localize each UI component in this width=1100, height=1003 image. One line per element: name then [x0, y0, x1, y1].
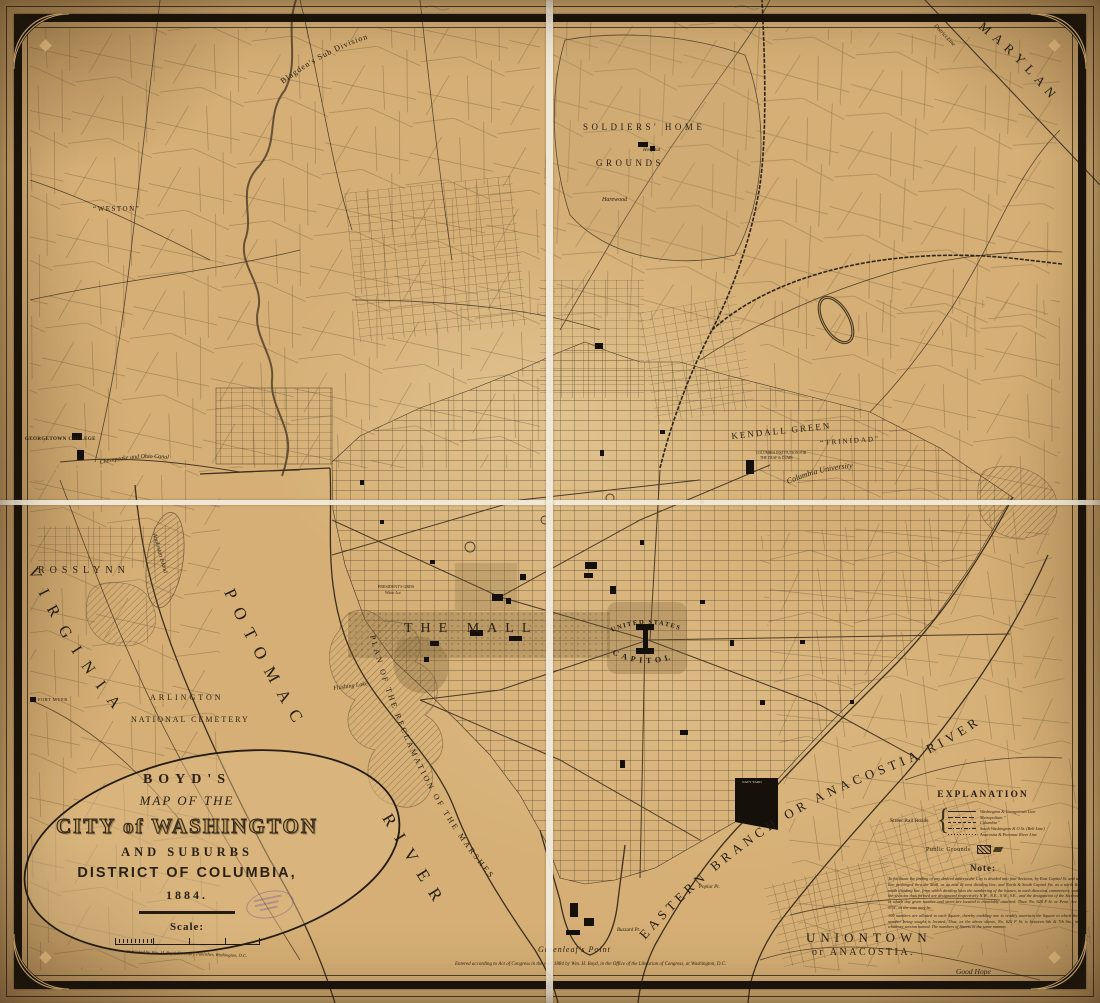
cartouche-boyds: BOYD'S: [32, 772, 342, 788]
legend-row: Anacostia & Potomac River Line: [948, 831, 1045, 837]
national-cemetery-label: NATIONAL CEMETERY: [131, 716, 250, 724]
note-text: To facilitate the finding of any desired…: [888, 876, 1078, 930]
kendall-green-label: KENDALL GREEN: [731, 422, 832, 441]
rail-roads-label: Street Rail Roads: [890, 818, 929, 824]
note-paragraph-2: 100 numbers are allotted to each Square,…: [888, 913, 1078, 930]
line-sample-dotted: [948, 834, 976, 835]
line-sample-short-dash: [948, 822, 976, 823]
cartouche-year: 1884.: [32, 888, 342, 903]
scale-bar-subdivisions: [115, 939, 153, 943]
note-paragraph-1: To facilitate the finding of any desired…: [888, 876, 1078, 911]
map-sheet: POTOMAC RIVER EASTERN BRANCH OR ANACOSTI…: [0, 0, 1100, 1003]
line-name: Anacostia & Potomac River Line: [980, 832, 1037, 837]
scale-bar: [115, 938, 260, 945]
note-title: Note:: [888, 863, 1078, 873]
georgetown-college-label: GEORGETOWN COLLEGE: [25, 437, 96, 442]
scale-label: Scale:: [32, 921, 342, 933]
legend-title: EXPLANATION: [888, 790, 1078, 800]
title-cartouche: BOYD'S MAP OF THE CITY of WASHINGTON AND…: [32, 772, 342, 956]
soldiers-home-label: SOLDIERS' HOME: [583, 123, 705, 132]
deaf-institution-label-2: THE DEAF & DUMB: [760, 457, 793, 461]
the-mall-label: THE MALL: [404, 622, 538, 636]
line-name: Columbia ″: [980, 820, 1000, 825]
presidents-grounds-label: PRESIDENT'S GRDS: [378, 585, 414, 589]
cartouche-city-of-washington: CITY of WASHINGTON: [32, 814, 342, 839]
line-name: Washington & Georgetown Line: [980, 809, 1035, 814]
rosslynn-label: ROSSLYNN: [38, 566, 130, 576]
trinidad-label: “TRINIDAD”: [820, 436, 880, 447]
line-name: Metropolitan ″: [980, 815, 1005, 820]
grounds-label: GROUNDS: [596, 159, 664, 168]
line-sample-solid: [948, 811, 976, 812]
poplar-point-label: Poplar Pt.: [699, 885, 720, 890]
line-sample-dashed: [948, 817, 976, 818]
harewood-label: Harewood: [602, 197, 627, 203]
cartouche-map-of-the: MAP OF THE: [32, 793, 342, 809]
legend-rail-roads: Street Rail Roads { Washington & Georget…: [888, 807, 1078, 839]
line-sample-dash-dot: [948, 828, 976, 829]
weston-label: “WESTON”: [93, 206, 140, 213]
cartouche-and-suburbs: AND SUBURBS: [32, 845, 342, 860]
fold-line-vertical: [546, 0, 553, 1003]
good-hope-label: Good Hope: [956, 968, 991, 976]
fort-myer-label: FORT MYER: [38, 698, 68, 703]
flushing-lake-label: Flushing Lake: [333, 681, 368, 692]
public-grounds-label: Public Grounds: [926, 847, 971, 853]
of-anacostia-label: or ANACOSTIA.: [812, 948, 915, 958]
public-grounds-symbol-2: [992, 847, 1002, 852]
line-name: South Washington & O St. (Belt Line): [980, 826, 1045, 831]
public-grounds-symbol: [977, 845, 991, 854]
uniontown-label: UNIONTOWN: [806, 931, 932, 944]
navy-yard-label: NAVY YARD: [742, 781, 762, 785]
legend: EXPLANATION Street Rail Roads { Washingt…: [888, 790, 1078, 932]
copyright-imprint: Entered according to Act of Congress in …: [455, 962, 726, 967]
cartouche-rule: [139, 911, 235, 914]
public-grounds-row: Public Grounds: [926, 845, 1078, 854]
white-lot-label: White Lot: [385, 591, 401, 595]
cartouche-district-of-columbia: DISTRICT OF COLUMBIA,: [32, 865, 342, 881]
arlington-label: ARLINGTON: [150, 694, 224, 702]
buzzard-point-label: Buzzard Pt.: [617, 928, 640, 933]
hospital-label: Hospital: [643, 148, 660, 153]
